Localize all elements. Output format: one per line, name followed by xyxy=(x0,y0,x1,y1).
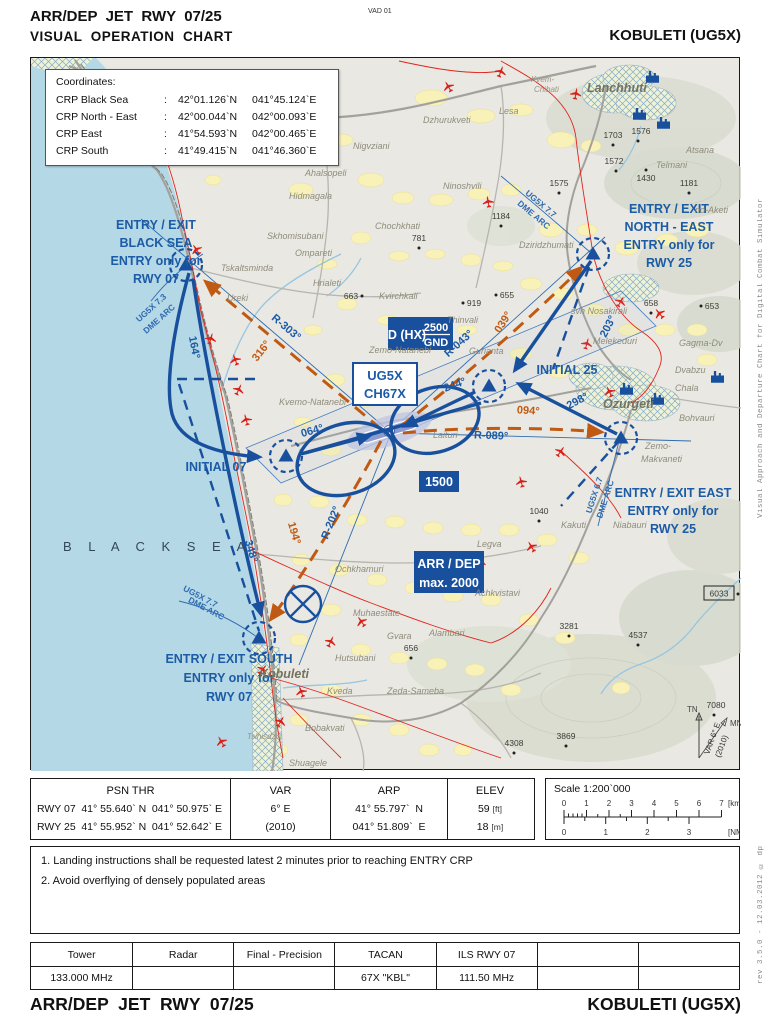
place-label: Alambari xyxy=(428,628,466,638)
radial-303: R-303° xyxy=(269,312,303,343)
no-overfly-symbol xyxy=(285,586,321,622)
place-label: Muhaestate xyxy=(353,608,400,618)
var-year: (2010) xyxy=(231,821,330,833)
place-label: no-Aketi xyxy=(695,205,729,215)
note-2: 2. Avoid overflying of densely populated… xyxy=(41,875,729,887)
place-label: Thinvali xyxy=(447,315,479,325)
crp-lat: 41°49.415`N xyxy=(178,145,252,157)
place-label: Gagma-Dv xyxy=(679,338,723,348)
crp-lat: 41°54.593`N xyxy=(178,128,252,140)
crp-lon: 042°00.465`E xyxy=(252,128,326,140)
place-label: Skhomisubani xyxy=(267,231,325,241)
crp-name: CRP Black Sea xyxy=(56,94,164,106)
place-label: Atsana xyxy=(685,145,714,155)
place-label: Tskaltsminda xyxy=(221,263,273,273)
entry-north-east: NORTH - EAST xyxy=(625,220,714,234)
scale-km-tick: 4 xyxy=(652,799,657,808)
place-label: Bohvauri xyxy=(679,413,716,423)
freq-value-tacan: 67X "KBL" xyxy=(334,966,435,989)
separator: : xyxy=(164,128,178,140)
place-label: Lesa xyxy=(499,106,519,116)
entry-east: ENTRY / EXIT EAST xyxy=(615,486,732,500)
psn-thr-header: PSN THR xyxy=(31,785,230,797)
freq-value-empty xyxy=(638,966,739,989)
place-label: Ahalsopeli xyxy=(304,168,348,178)
place-label: svh Nosakirali xyxy=(571,306,628,316)
freq-value-final-precision xyxy=(233,966,334,989)
place-label: Zemo- xyxy=(644,441,671,451)
scale-ruler: 0 1 2 3 4 5 6 7 [km] 0 1 2 3 [NM] xyxy=(554,795,740,839)
elev-header: ELEV xyxy=(448,785,532,797)
crp-name: CRP North - East xyxy=(56,111,164,123)
place-label: Kvem- xyxy=(531,75,554,84)
scale-nm-tick: 0 xyxy=(562,828,567,837)
elev-column: ELEV 59 [ft] 18 [m] xyxy=(447,779,532,839)
arrdep-altitude: max. 2000 xyxy=(419,576,479,590)
place-label: Chala xyxy=(675,383,699,393)
scale-km-tick: 6 xyxy=(697,799,702,808)
place-label: Kvirchkali xyxy=(379,291,419,301)
place-label: Niabauri xyxy=(613,520,648,530)
elevation-label: 4537 xyxy=(629,630,648,640)
coordinates-title: Coordinates: xyxy=(56,76,330,88)
elev-ft: 59 [ft] xyxy=(448,803,532,815)
place-label: Dvabzu xyxy=(675,365,706,375)
elevation-label: 781 xyxy=(412,233,426,243)
radial-089: R-089° xyxy=(474,429,509,442)
place-label: Kakuti xyxy=(561,520,587,530)
separator: : xyxy=(164,111,178,123)
crp-lon: 041°46.360`E xyxy=(252,145,326,157)
crp-lat: 42°01.126`N xyxy=(178,94,252,106)
radial-202: R-202° xyxy=(319,505,343,541)
elevation-label: 919 xyxy=(467,298,481,308)
crp-lat: 42°00.044`N xyxy=(178,111,252,123)
rwy07-lat: 41° 55.640` N xyxy=(81,803,146,815)
coordinate-row: CRP Black Sea:42°01.126`N041°45.124`E xyxy=(56,94,330,106)
entry-east: ENTRY only for xyxy=(628,504,719,518)
danger-area-ceiling: 2500 xyxy=(424,322,448,334)
elevation-label: 1576 xyxy=(632,126,651,136)
rwy07-row: RWY 07 41° 55.640` N 041° 50.975` E xyxy=(31,803,230,815)
coordinate-row: CRP South:41°49.415`N041°46.360`E xyxy=(56,145,330,157)
entry-south: ENTRY / EXIT SOUTH xyxy=(165,652,292,666)
place-label: Bobakvati xyxy=(305,723,346,733)
rwy07-label: RWY 07 xyxy=(37,803,76,815)
place-label: Achkvistavi xyxy=(474,588,521,598)
scale-nm-tick: 1 xyxy=(603,828,608,837)
chart-subtitle: VISUAL OPERATION CHART xyxy=(30,29,233,44)
scale-km-unit: [km] xyxy=(728,799,740,808)
freq-value-ils: 111.50 MHz xyxy=(436,966,537,989)
elevation-label: 1703 xyxy=(604,130,623,140)
freq-header-radar: Radar xyxy=(132,943,233,966)
place-label: Gurianta xyxy=(469,346,504,356)
place-label: Ozurgeti xyxy=(603,397,654,411)
footer-airport: KOBULETI (UG5X) xyxy=(587,994,741,1015)
course-316: 316° xyxy=(250,338,273,363)
scale-km-tick: 3 xyxy=(629,799,634,808)
elevation-label: 655 xyxy=(500,290,514,300)
scale-km-tick: 1 xyxy=(584,799,589,808)
elevation-label: 658 xyxy=(644,298,658,308)
elevation-label-max: 6033 xyxy=(710,589,729,599)
crp-lon: 041°45.124`E xyxy=(252,94,326,106)
place-label: Zemo-Natanebi xyxy=(368,345,432,355)
freq-header-empty xyxy=(638,943,739,966)
place-label: Hidmagala xyxy=(289,191,332,201)
elev-ft-unit: [ft] xyxy=(493,804,502,814)
place-label: Melekeduri xyxy=(593,336,638,346)
elev-m-value: 18 xyxy=(477,821,489,833)
frequency-table: Tower Radar Final - Precision TACAN ILS … xyxy=(30,942,740,990)
note-1: 1. Landing instructions shall be request… xyxy=(41,855,729,867)
course-094: 094° xyxy=(516,404,540,418)
map-area: D (HX) 2500 GND UG5X CH67X 1500 ARR / DE… xyxy=(30,57,740,770)
notes-box: 1. Landing instructions shall be request… xyxy=(30,846,740,934)
elevation-label: 4308 xyxy=(505,738,524,748)
entry-east: RWY 25 xyxy=(650,522,696,536)
place-label: Hutsubani xyxy=(335,653,377,663)
crp-north-east xyxy=(577,238,609,270)
coordinate-row: CRP East:41°54.593`N042°00.465`E xyxy=(56,128,330,140)
place-label: Chochkhati xyxy=(375,221,421,231)
var-column: VAR 6° E (2010) xyxy=(230,779,330,839)
freq-header-final-precision: Final - Precision xyxy=(233,943,334,966)
place-label: Shuagele xyxy=(289,758,327,768)
freq-value-empty xyxy=(537,966,638,989)
elev-m-unit: [m] xyxy=(491,822,503,832)
place-label: Dziridzhumati xyxy=(519,240,575,250)
true-north-label: TN xyxy=(687,705,698,714)
initial-25-label: INITIAL 25 xyxy=(537,363,598,377)
elevation-label: 7080 xyxy=(707,700,726,710)
arp-header: ARP xyxy=(331,785,447,797)
place-label: Makvaneti xyxy=(641,454,683,464)
freq-header-tower: Tower xyxy=(31,943,132,966)
scale-title: Scale 1:200`000 xyxy=(554,783,739,795)
scale-km-tick: 2 xyxy=(607,799,612,808)
freq-header-tacan: TACAN xyxy=(334,943,435,966)
var-header: VAR xyxy=(231,785,330,797)
danger-area-label: D (HX) xyxy=(388,328,426,342)
freq-header-ils: ILS RWY 07 xyxy=(436,943,537,966)
rwy25-label: RWY 25 xyxy=(37,821,76,833)
course-194: 194° xyxy=(285,521,303,546)
scale-nm-tick: 2 xyxy=(645,828,650,837)
place-label: Lanchhuti xyxy=(587,81,647,95)
var-value: 6° E xyxy=(231,803,330,815)
entry-black-sea: BLACK SEA xyxy=(120,236,193,250)
place-label: Ninoshvili xyxy=(443,181,483,191)
place-label: Kobuleti xyxy=(259,667,310,681)
airport-name: KOBULETI (UG5X) xyxy=(609,27,741,44)
rwy25-lon: 041° 52.642` E xyxy=(152,821,222,833)
side-caption-bottom: rev 3.5.0 - 12.03.2012 © dp xyxy=(757,810,765,1020)
arp-column: ARP 41° 55.797` N 041° 51.809` E xyxy=(330,779,447,839)
place-label: Telmani xyxy=(656,160,688,170)
entry-north-east: RWY 25 xyxy=(646,256,692,270)
psn-thr-column: PSN THR RWY 07 41° 55.640` N 041° 50.975… xyxy=(31,779,230,839)
place-label: Ochkhamuri xyxy=(335,564,385,574)
elevation-label: 663 xyxy=(344,291,358,301)
separator: : xyxy=(164,145,178,157)
separator: : xyxy=(164,94,178,106)
navaid-id: UG5X xyxy=(367,368,403,383)
arrdep-label: ARR / DEP xyxy=(417,557,480,571)
initial-07-label: INITIAL 07 xyxy=(186,460,247,474)
scale-km-tick: 0 xyxy=(562,799,567,808)
crp-east xyxy=(605,422,637,454)
entry-south: RWY 07 xyxy=(206,690,252,704)
elevation-label: 3281 xyxy=(560,621,579,631)
crp-lon: 042°00.093`E xyxy=(252,111,326,123)
elevation-label: 656 xyxy=(404,643,418,653)
arp-lat: 41° 55.797` N xyxy=(331,803,447,815)
freq-header-empty xyxy=(537,943,638,966)
place-label: Zeda-Sameba xyxy=(386,686,444,696)
footer-title: ARR/DEP JET RWY 07/25 xyxy=(30,994,254,1015)
elevation-label: 1184 xyxy=(492,211,511,221)
place-label: Kvemo-Natanebi xyxy=(279,397,347,407)
place-label: Tsihisdziri xyxy=(247,732,282,741)
elevation-label: 1181 xyxy=(680,178,699,188)
elev-m: 18 [m] xyxy=(448,821,532,833)
place-label: Ompareti xyxy=(295,248,333,258)
crp-name: CRP South xyxy=(56,145,164,157)
elevation-label: 3869 xyxy=(557,731,576,741)
scale-km-tick: 7 xyxy=(719,799,724,808)
elevation-label: 1575 xyxy=(550,178,569,188)
navaid-channel: CH67X xyxy=(364,386,406,401)
coordinate-row: CRP North - East:42°00.044`N042°00.093`E xyxy=(56,111,330,123)
place-label: Kveda xyxy=(327,686,353,696)
scale-box: Scale 1:200`000 0 1 2 3 4 5 6 7 xyxy=(545,778,740,840)
elev-ft-value: 59 xyxy=(478,803,490,815)
rwy25-row: RWY 25 41° 55.952` N 041° 52.642` E xyxy=(31,821,230,833)
pattern-altitude: 1500 xyxy=(425,475,453,489)
rwy07-lon: 041° 50.975` E xyxy=(152,803,222,815)
place-label: Chibati xyxy=(534,85,559,94)
entry-north-east: ENTRY only for xyxy=(624,238,715,252)
scale-nm-tick: 3 xyxy=(687,828,692,837)
place-label: Ureki xyxy=(227,293,249,303)
entry-black-sea: ENTRY / EXIT xyxy=(116,218,196,232)
place-label: Legva xyxy=(477,539,502,549)
elevation-label: 1430 xyxy=(637,173,656,183)
freq-value-tower: 133.000 MHz xyxy=(31,966,132,989)
place-label: Laituri xyxy=(433,430,459,440)
doc-code: VAD 01 xyxy=(368,8,392,15)
freq-value-radar xyxy=(132,966,233,989)
runway-info-table: PSN THR RWY 07 41° 55.640` N 041° 50.975… xyxy=(30,778,535,840)
chart-page: ARR/DEP JET RWY 07/25 VISUAL OPERATION C… xyxy=(0,0,768,1024)
place-label: Hrialeti xyxy=(313,278,342,288)
sea-label: B L A C K S E A xyxy=(63,539,252,554)
elevation-label: 1572 xyxy=(605,156,624,166)
entry-black-sea: ENTRY only for xyxy=(111,254,202,268)
scale-nm-unit: [NM] xyxy=(728,828,740,837)
chart-title: ARR/DEP JET RWY 07/25 xyxy=(30,8,222,25)
crp-name: CRP East xyxy=(56,128,164,140)
rwy25-lat: 41° 55.952` N xyxy=(81,821,146,833)
elevation-label: 1040 xyxy=(530,506,549,516)
place-label: Nigvziani xyxy=(353,141,391,151)
arp-lon: 041° 51.809` E xyxy=(331,821,447,833)
side-caption-top: Visual Approach and Departure Chart for … xyxy=(757,58,765,658)
coordinates-box: Coordinates: CRP Black Sea:42°01.126`N04… xyxy=(45,69,339,166)
entry-black-sea: RWY 07 xyxy=(133,272,179,286)
place-label: Dzhurukveti xyxy=(423,115,472,125)
place-label: Gvara xyxy=(387,631,412,641)
magnetic-north-label: MN xyxy=(730,719,741,728)
elevation-label: 653 xyxy=(705,301,719,311)
scale-km-tick: 5 xyxy=(674,799,679,808)
